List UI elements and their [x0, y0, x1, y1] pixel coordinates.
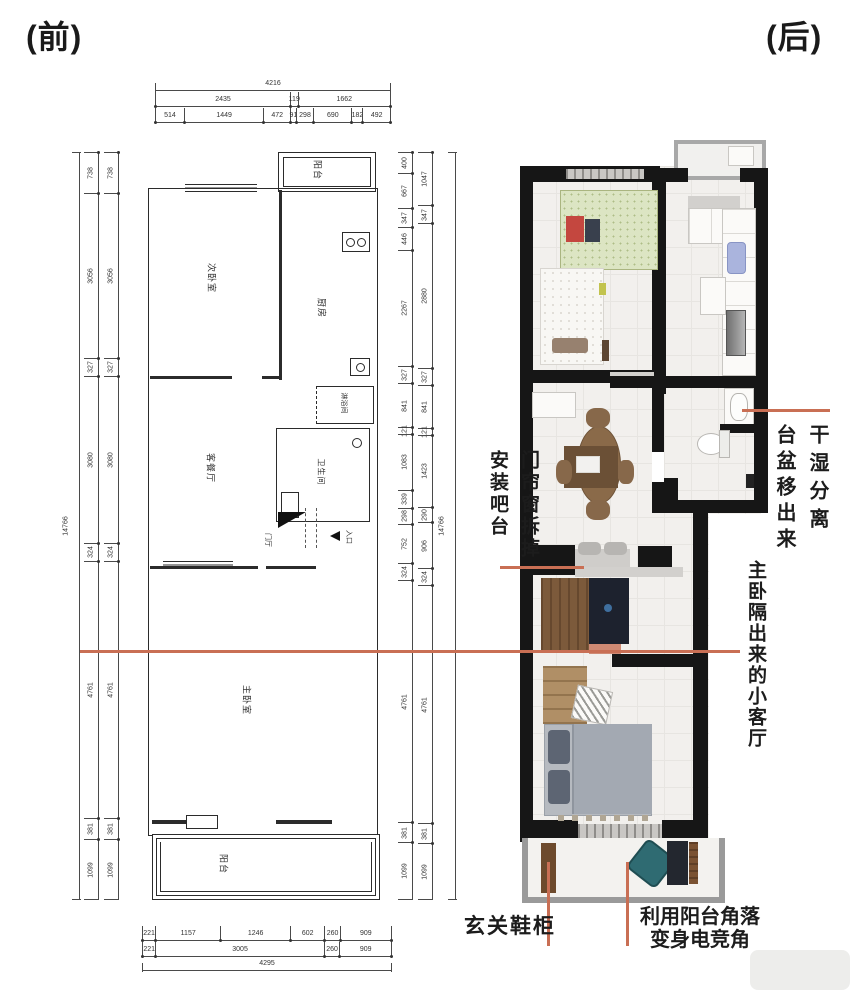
annotation-basin-col1: 干湿分离 — [803, 424, 832, 594]
dim-segment: 121 — [418, 428, 432, 435]
washbasin-moved-out — [724, 388, 754, 426]
wall-bathroom-left — [652, 388, 664, 502]
table-setting — [576, 456, 600, 473]
dim-segment: 324 — [418, 568, 432, 585]
wall-bathroom-right — [754, 388, 768, 500]
dim-segment: 4761 — [104, 561, 118, 818]
balcony-shelf — [689, 842, 698, 884]
wall-kitchen-right — [754, 172, 768, 376]
dim-bottom-detail: 22111571246602260909 — [142, 926, 392, 941]
annotation-gaming-line2: 变身电竞角 — [640, 929, 760, 952]
dim-top-total: 4216 — [155, 78, 391, 91]
dim-segment: 400 — [398, 152, 412, 173]
dim-segment: 327 — [418, 368, 432, 385]
dim-segment: 381 — [418, 823, 432, 843]
annotation-living: 主卧隔出来的小客厅 — [742, 560, 769, 749]
dim-segment: 381 — [104, 818, 118, 839]
wall-right-lower — [693, 506, 708, 842]
dim-segment: 1423 — [418, 435, 432, 507]
dim-segment: 472 — [263, 108, 290, 122]
dim-segment: 667 — [398, 173, 412, 208]
dim-segment: 298 — [398, 508, 412, 524]
dim-segment: 3080 — [104, 376, 118, 542]
living-cabinet — [541, 578, 589, 652]
dim-segment: 1662 — [298, 92, 391, 106]
oven — [726, 310, 746, 356]
dining-chair — [618, 460, 634, 484]
dark-pillow — [585, 219, 600, 242]
clutter-row — [558, 815, 654, 821]
watermark — [750, 950, 850, 990]
dim-segment: 1099 — [418, 843, 432, 900]
window-strip-master — [578, 824, 662, 838]
dim-segment: 327 — [84, 358, 98, 377]
dim-right-segs-inner: 4006673474462267327841121108333929875232… — [398, 152, 413, 900]
entry-door-dash — [305, 508, 306, 548]
balcony-cabinet — [728, 146, 754, 166]
dim-segment: 2435 — [155, 92, 290, 106]
tv-detail — [604, 604, 612, 612]
annotation-gaming-line1: 利用阳台角落 — [640, 906, 760, 929]
dim-segment: 602 — [290, 926, 324, 940]
exterior-mask — [768, 166, 850, 376]
dim-segment: 221 — [142, 942, 155, 956]
dim-segment: 260 — [324, 942, 340, 956]
label-before: (前) — [26, 12, 82, 58]
dim-right-total: 14766 — [442, 152, 456, 900]
dim-segment: 381 — [84, 818, 98, 839]
basin-bowl — [730, 393, 748, 421]
annotation-bar-col1: 门帘窗拆掉 — [515, 450, 542, 575]
dim-segment: 324 — [104, 543, 118, 561]
drain-symbol — [352, 438, 362, 448]
dim-segment: 221 — [142, 926, 155, 940]
dim-segment: 2267 — [398, 250, 412, 366]
entrance-arrow-icon — [330, 531, 340, 541]
article-image: { "page": { "label_before": "(前)", "labe… — [0, 0, 850, 1000]
wall-bedroom2-kitchen — [279, 190, 282, 380]
dim-segment: 446 — [398, 227, 412, 251]
dining-chair — [586, 408, 610, 428]
bed-pillow-gray — [548, 770, 570, 804]
dim-segment: 841 — [398, 383, 412, 427]
dim-segment: 324 — [398, 563, 412, 580]
dim-top-mid: 24351191662 — [155, 92, 391, 107]
annotation-bar-col2: 安装吧台 — [484, 450, 511, 575]
dim-segment: 290 — [418, 507, 432, 522]
wall-hall-bottom — [266, 566, 316, 569]
sill-strip — [575, 567, 683, 577]
wall — [652, 168, 688, 182]
red-pillow — [566, 216, 584, 242]
wall-stub — [664, 478, 678, 500]
annotation-bar: 门帘窗拆掉 安装吧台 — [484, 450, 542, 575]
room-label-kitchen: 厨房 — [316, 298, 329, 318]
sink-symbol — [350, 358, 370, 376]
bar-stool — [604, 542, 627, 555]
dim-top-detail: 514144947291298690182492 — [155, 108, 391, 123]
cad-balcony-bottom — [152, 834, 380, 900]
dim-segment: 841 — [418, 385, 432, 428]
dim-left-total: 14766 — [66, 152, 80, 900]
sideboard — [532, 392, 576, 418]
room-label-balcony-top: 阳台 — [312, 160, 325, 180]
dim-segment: 752 — [398, 524, 412, 563]
dim-segment: 3080 — [84, 376, 98, 542]
kitchen-island — [700, 277, 726, 315]
kitchen-balcony-sill — [688, 196, 740, 208]
annotation-shoe: 玄关鞋柜 — [464, 910, 556, 940]
bed-pillow — [552, 338, 588, 353]
dim-segment: 339 — [398, 490, 412, 508]
stove-symbol — [342, 232, 370, 252]
dim-segment: 4761 — [84, 561, 98, 818]
dim-segment: 327 — [104, 358, 118, 377]
callout-line-living-long — [80, 650, 740, 653]
wall-master-balcony — [276, 820, 332, 824]
dim-segment: 906 — [418, 522, 432, 568]
wall-stub — [262, 376, 282, 379]
bed-pillow-gray — [548, 730, 570, 764]
dim-segment: 514 — [155, 108, 184, 122]
dim-segment: 1099 — [398, 842, 412, 900]
annotation-basin-col2: 台盆移出来 — [770, 424, 799, 594]
room-label-bedroom2: 次卧室 — [206, 263, 219, 293]
dim-segment: 738 — [104, 152, 118, 193]
dim-segment: 381 — [398, 822, 412, 842]
dim-segment: 690 — [313, 108, 351, 122]
bar-stool — [578, 542, 601, 555]
dim-segment: 1047 — [418, 152, 432, 205]
room-label-shower: 淋浴间 — [339, 393, 349, 414]
nightstand — [602, 340, 609, 361]
window-hatch-top — [185, 184, 257, 193]
striped-rug — [571, 685, 613, 726]
dim-segment: 909 — [339, 942, 392, 956]
dim-segment: 4761 — [418, 585, 432, 823]
wall-bathroom-top — [610, 376, 768, 388]
dining-chair — [556, 460, 572, 484]
dim-segment: 119 — [290, 92, 298, 106]
dim-segment: 1099 — [84, 839, 98, 900]
dim-bottom-mid: 2213005260909 — [142, 942, 392, 957]
burner-icon — [346, 238, 355, 247]
wall-bathroom-bottom — [652, 500, 768, 513]
window-strip — [566, 169, 644, 179]
duvet — [572, 724, 652, 814]
sink-basin-icon — [356, 363, 365, 372]
dim-segment: 3056 — [104, 193, 118, 358]
callout-line-basin — [742, 409, 830, 412]
dim-segment: 1157 — [155, 926, 220, 940]
shower-fixture — [746, 474, 754, 488]
dim-segment: 738 — [84, 152, 98, 193]
dim-left-segs-inner: 7383056327308032447613811099 — [104, 152, 119, 900]
cad-balcony-top — [278, 152, 376, 192]
dim-segment: 260 — [324, 926, 339, 940]
dim-segment: 121 — [398, 427, 412, 434]
dim-right-segs-outer: 1047347288032784112114232909063244761381… — [418, 152, 433, 900]
dining-chair — [586, 500, 610, 520]
dim-segment: 347 — [398, 208, 412, 227]
annotation-basin: 干湿分离 台盆移出来 — [770, 424, 832, 594]
dim-segment: 327 — [398, 366, 412, 384]
room-label-hall: 门厅 — [263, 533, 273, 547]
bathroom-door-gap — [652, 452, 664, 482]
wall-living-master-stub — [612, 654, 702, 667]
gaming-desk — [667, 841, 688, 885]
dim-left-segs-outer: 7383056327308032447613811099 — [84, 152, 99, 900]
dim-segment: 1449 — [184, 108, 264, 122]
room-label-balcony-bottom: 阳台 — [218, 854, 231, 874]
burner-icon — [357, 238, 366, 247]
room-label-entrance: 入口 — [344, 530, 354, 544]
toilet-tank — [719, 430, 730, 458]
dim-segment: 347 — [418, 205, 432, 223]
balcony-window-line — [160, 842, 372, 892]
dim-segment: 1099 — [104, 839, 118, 900]
room-label-living: 客餐厅 — [205, 453, 218, 483]
entry-door-dash — [316, 508, 317, 548]
dim-segment: 909 — [340, 926, 392, 940]
dim-segment: 298 — [296, 108, 313, 122]
room-label-bathroom: 卫生间 — [316, 459, 327, 486]
dim-segment: 492 — [362, 108, 391, 122]
dim-segment: 1083 — [398, 434, 412, 490]
plant — [599, 283, 606, 295]
label-after: (后) — [766, 12, 822, 58]
dim-segment: 1246 — [220, 926, 290, 940]
dim-bottom-total: 4295 — [142, 958, 392, 971]
dim-segment: 4761 — [398, 580, 412, 822]
dim-segment: 3056 — [84, 193, 98, 358]
dim-segment: 182 — [351, 108, 362, 122]
callout-line-gaming — [626, 862, 629, 946]
room-label-master: 主卧室 — [241, 685, 254, 715]
window-sill — [186, 815, 218, 829]
dim-segment: 324 — [84, 543, 98, 561]
dim-segment: 3005 — [155, 942, 324, 956]
balcony-window-line — [283, 157, 371, 187]
dim-segment: 2880 — [418, 223, 432, 367]
wall-bedroom2-bottom — [150, 376, 232, 379]
window-hatch-living — [163, 561, 233, 570]
annotation-gaming: 利用阳台角落 变身电竞角 — [640, 906, 760, 952]
kitchen-sink — [727, 242, 746, 274]
